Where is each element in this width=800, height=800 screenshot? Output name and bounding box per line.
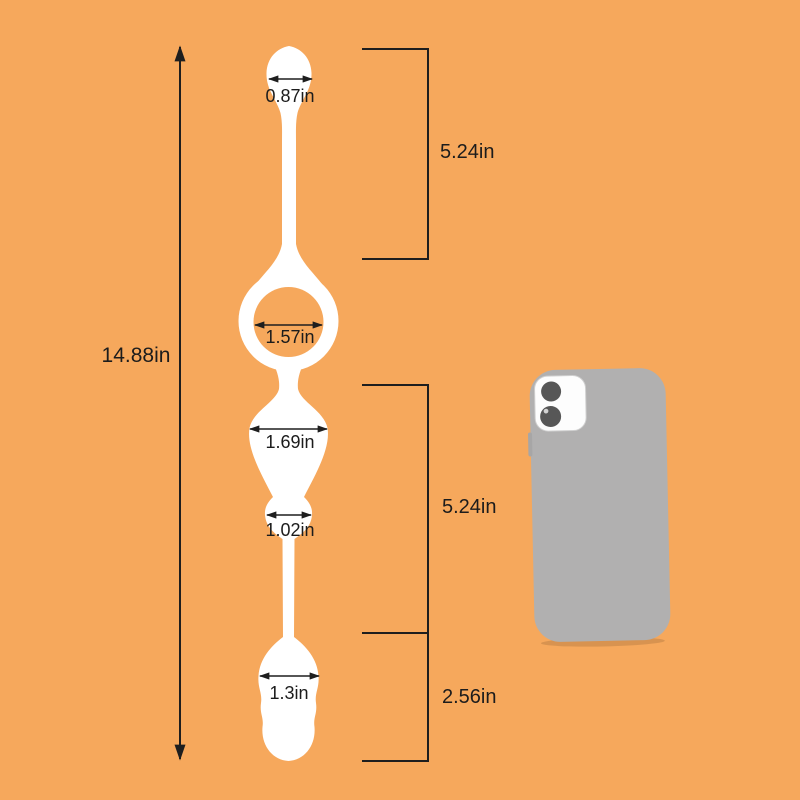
upper-section-bracket xyxy=(362,49,428,259)
total-length-label: 14.88in xyxy=(66,344,206,367)
tip-section-label: 2.56in xyxy=(442,686,497,708)
lower-section-label: 5.24in xyxy=(442,496,497,518)
upper-section-label: 5.24in xyxy=(440,141,495,163)
small-bead-width-label: 1.02in xyxy=(240,521,340,541)
lower-section-bracket xyxy=(362,385,428,761)
top-bead-and-stem xyxy=(266,46,311,252)
bottom-bead-width-label: 1.3in xyxy=(239,684,339,704)
top-bead-width-label: 0.87in xyxy=(240,87,340,107)
dimension-diagram: 14.88in 0.87in 5.24in 1.57in 1.69in 1.02… xyxy=(0,0,800,800)
phone-illustration xyxy=(527,368,671,648)
diagram-canvas xyxy=(0,0,800,800)
product-silhouette xyxy=(239,46,339,761)
large-bead-width-label: 1.69in xyxy=(240,433,340,453)
ring-diameter-label: 1.57in xyxy=(240,328,340,348)
phone-side-button xyxy=(528,432,533,456)
camera-module xyxy=(534,375,586,431)
